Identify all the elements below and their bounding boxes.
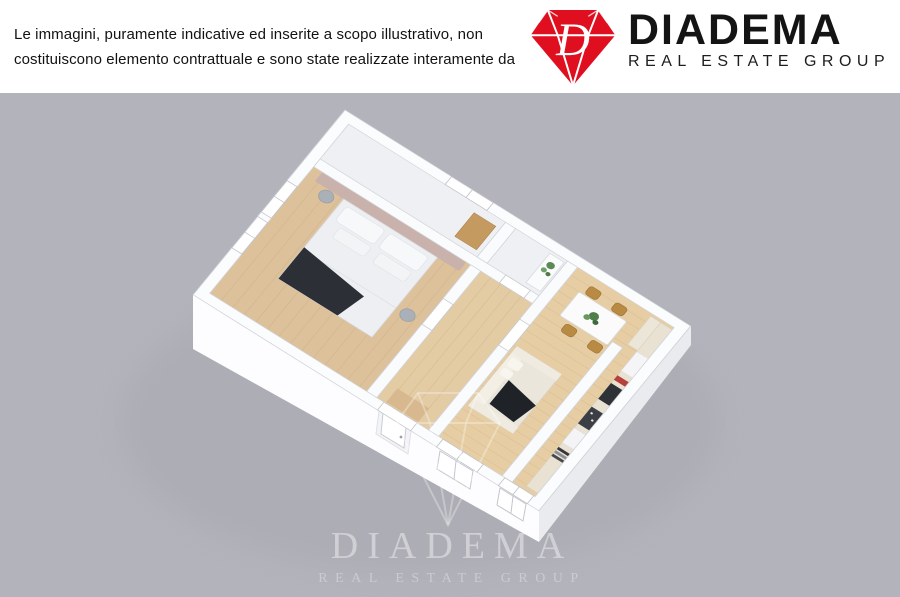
disclaimer-line-1: Le immagini, puramente indicative ed ins… [14,23,515,48]
brand-name: DIADEMA [628,10,890,50]
brand-tagline: REAL ESTATE GROUP [628,53,890,71]
disclaimer-line-2: costituiscono elemento contrattuale e so… [14,48,515,73]
apartment-3d-floor-plan: DIADEMA REAL ESTATE GROUP [0,93,900,597]
brand-logo: D DIADEMA REAL ESTATE GROUP [528,2,890,90]
logo-text: DIADEMA REAL ESTATE GROUP [628,2,890,71]
disclaimer-text: Le immagini, puramente indicative ed ins… [14,23,515,72]
watermark-brand: DIADEMA [331,525,573,567]
logo-monogram: D [555,14,590,66]
diamond-gem-icon: D [528,2,618,90]
header-bar: Le immagini, puramente indicative ed ins… [0,0,900,93]
watermark-tagline: REAL ESTATE GROUP [318,571,585,586]
floorplan-canvas: DIADEMA REAL ESTATE GROUP [0,93,900,597]
